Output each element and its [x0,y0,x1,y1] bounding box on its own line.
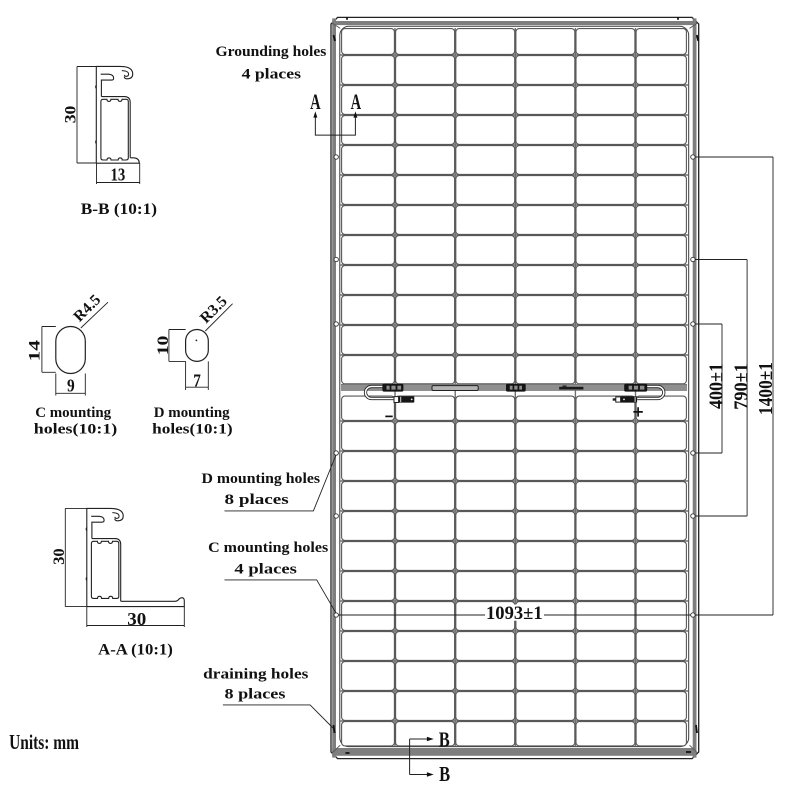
svg-text:9: 9 [67,376,75,396]
svg-text:790±1: 790±1 [730,363,752,410]
svg-text:4 places: 4 places [234,561,297,577]
svg-text:C mounting holes: C mounting holes [208,540,328,556]
svg-text:4 places: 4 places [242,66,302,82]
svg-text:B: B [439,727,450,751]
svg-text:D mounting: D mounting [154,405,231,421]
svg-text:D mounting holes: D mounting holes [202,471,321,487]
svg-text:draining holes: draining holes [203,667,309,683]
svg-text:Grounding holes: Grounding holes [216,44,327,60]
svg-text:B-B (10:1): B-B (10:1) [81,201,157,218]
svg-text:holes(10:1): holes(10:1) [152,422,233,438]
svg-text:400±1: 400±1 [705,363,727,409]
svg-text:1093±1: 1093±1 [486,604,543,624]
svg-text:A: A [351,89,362,114]
svg-text:30: 30 [127,609,146,629]
svg-text:1400±1: 1400±1 [755,362,777,415]
svg-text:Units: mm: Units: mm [9,730,79,754]
svg-text:holes(10:1): holes(10:1) [34,422,118,438]
svg-text:8 places: 8 places [225,492,290,508]
svg-text:30: 30 [62,106,79,124]
svg-text:10: 10 [155,336,172,356]
svg-text:C mounting: C mounting [35,405,112,421]
svg-text:A-A (10:1): A-A (10:1) [98,641,173,658]
svg-text:A: A [310,89,321,114]
svg-text:30: 30 [51,548,68,565]
svg-text:14: 14 [27,340,44,361]
svg-text:B: B [439,762,450,786]
svg-text:13: 13 [111,164,126,184]
svg-text:7: 7 [193,370,201,390]
svg-text:8 places: 8 places [225,686,286,702]
